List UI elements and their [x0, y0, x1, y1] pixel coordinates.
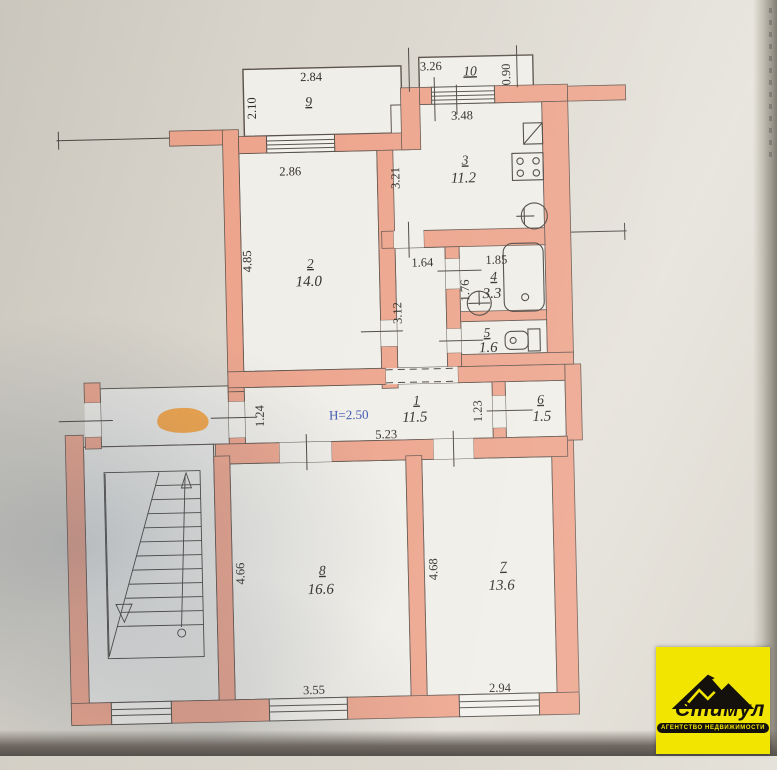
room-2-number: 2 — [307, 256, 314, 271]
dim-balcony10-depth: 0.90 — [499, 63, 513, 85]
dim-bath-depth: 1.76 — [458, 279, 472, 301]
agency-logo-tagline: АГЕНТСТВО НЕДВИЖИМОСТИ — [657, 723, 769, 733]
balcony-9-floor — [243, 66, 402, 137]
door-entry-hall — [228, 402, 245, 438]
room-7-floor — [422, 457, 557, 696]
room-8-area: 16.6 — [307, 582, 334, 599]
dim-kitchen-depth: 3.21 — [388, 167, 402, 189]
room-8-number: 8 — [319, 563, 326, 578]
room-6-area: 1.5 — [532, 409, 552, 425]
ceiling-height-note: H=2.50 — [329, 407, 369, 423]
room-8-floor — [230, 460, 411, 700]
room-7-area: 13.6 — [488, 577, 515, 594]
room-9-number: 9 — [305, 94, 312, 109]
dim-room8-depth: 4.66 — [233, 563, 247, 585]
dim-hall-left: 1.24 — [253, 404, 268, 427]
dim-bath-width: 1.85 — [485, 253, 507, 267]
room-6-number: 6 — [537, 392, 544, 407]
room-4-area: 3.3 — [482, 286, 502, 302]
room-1-number: 1 — [413, 393, 420, 408]
room-3-area: 11.2 — [451, 170, 477, 187]
bathroom-floor — [459, 240, 547, 314]
dim-balcony9-width: 2.84 — [300, 70, 323, 85]
dim-kitchen-window: 3.48 — [451, 108, 473, 122]
dim-room2-window: 2.86 — [279, 164, 301, 178]
dim-corridor-depth: 3.12 — [390, 302, 404, 324]
room-2-area: 14.0 — [295, 274, 322, 291]
hall-floor — [244, 382, 493, 444]
dim-room7-depth: 4.68 — [426, 558, 440, 580]
toilet-floor — [461, 320, 548, 355]
window-room8 — [269, 697, 347, 721]
dim-corridor-width: 1.64 — [411, 255, 434, 270]
room-3-number: 3 — [460, 152, 468, 167]
dim-balcony10-width: 3.26 — [420, 59, 442, 73]
agency-logo-brand: Стимул — [675, 699, 765, 720]
window-stairwell — [111, 701, 171, 724]
room-5-number: 5 — [483, 325, 490, 340]
floorplan-photo: 2.84 9 2.10 3.26 10 0.90 3.48 3.21 3 11.… — [0, 0, 777, 756]
door-room8 — [279, 442, 331, 463]
door-room6 — [492, 396, 506, 428]
dim-room2-depth: 4.85 — [240, 250, 254, 272]
dim-hall-width: 5.23 — [375, 427, 397, 441]
room-5-area: 1.6 — [479, 340, 499, 356]
door-landing-left — [84, 403, 101, 437]
dim-balcony9-depth: 2.10 — [245, 97, 259, 119]
window-room7 — [459, 693, 539, 717]
agency-logo: Стимул АГЕНТСТВО НЕДВИЖИМОСТИ — [656, 647, 770, 754]
dim-hall-right: 1.23 — [470, 400, 484, 422]
dim-room7-width: 2.94 — [489, 681, 512, 696]
room-1-area: 11.5 — [402, 409, 428, 426]
dim-room8-width: 3.55 — [303, 683, 325, 697]
room-10-number: 10 — [463, 63, 477, 78]
room-4-number: 4 — [490, 269, 497, 284]
